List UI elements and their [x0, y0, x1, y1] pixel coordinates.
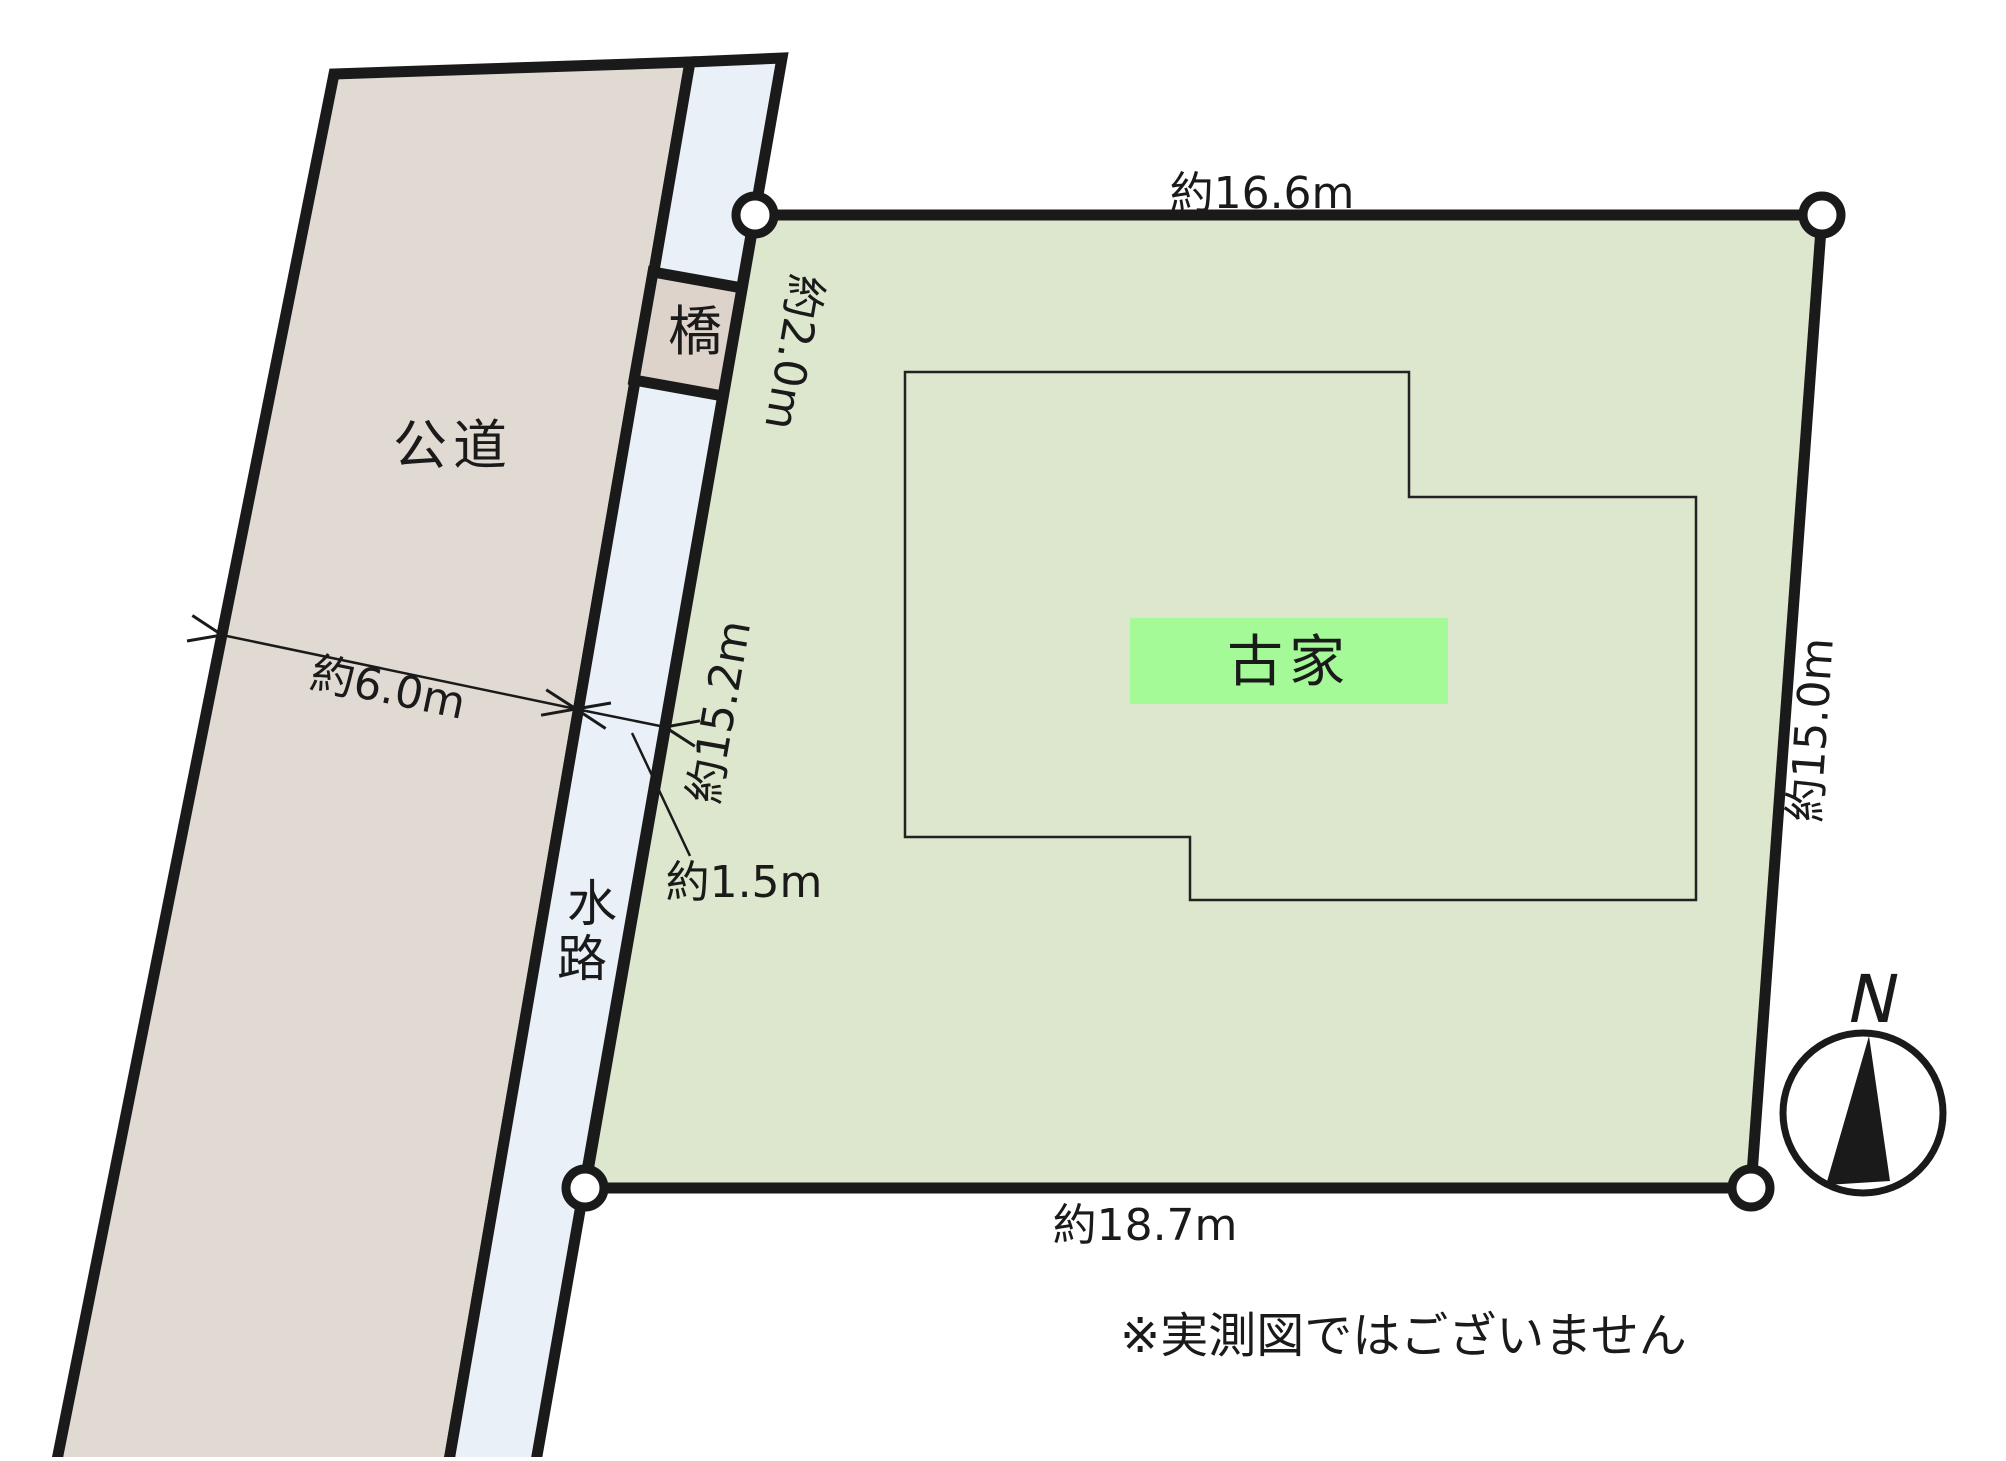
corner-marker-top-right [1803, 196, 1841, 234]
site-plan-diagram: 橋 古家 公道 約6.0m 水 路 約1.5m 約16.6m 約18.7m 約2… [0, 0, 2006, 1457]
plot-bottom-dimension: 約18.7m [1053, 1200, 1238, 1251]
waterway-label-char2: 路 [557, 930, 607, 988]
waterway-label-char1: 水 [567, 875, 617, 933]
house-label: 古家 [1227, 630, 1351, 695]
corner-marker-bottom-right [1732, 1169, 1770, 1207]
road-label: 公道 [393, 414, 513, 477]
corner-marker-bottom-left [566, 1169, 604, 1207]
waterway-width-dimension: 約1.5m [666, 857, 823, 908]
site-plan-page: 橋 古家 公道 約6.0m 水 路 約1.5m 約16.6m 約18.7m 約2… [0, 0, 2006, 1457]
corner-marker-top-left [736, 196, 774, 234]
bridge-label: 橋 [668, 300, 722, 363]
disclaimer-note: ※実測図ではございません [1120, 1308, 1687, 1364]
plot-top-dimension: 約16.6m [1170, 168, 1355, 219]
